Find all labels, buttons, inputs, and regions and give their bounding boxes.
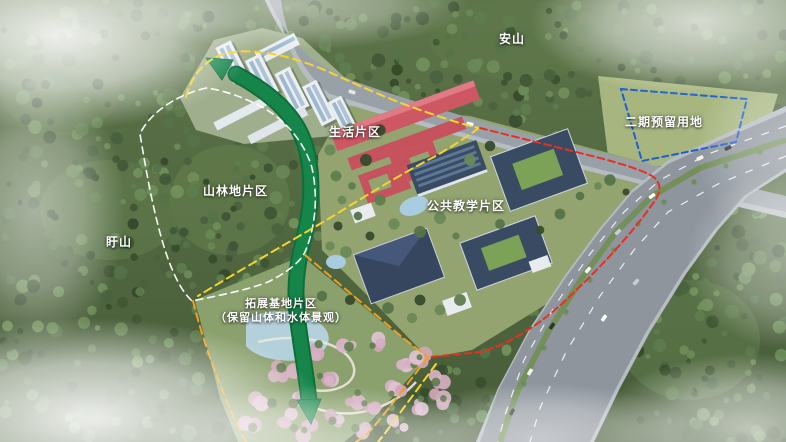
small-pond (326, 255, 346, 269)
masterplan-rendering: 安山 二期预留用地 生活片区 山林地片区 盱山 公共教学片区 拓展基地片区 （保… (0, 0, 786, 442)
aerial-scene (0, 0, 786, 442)
